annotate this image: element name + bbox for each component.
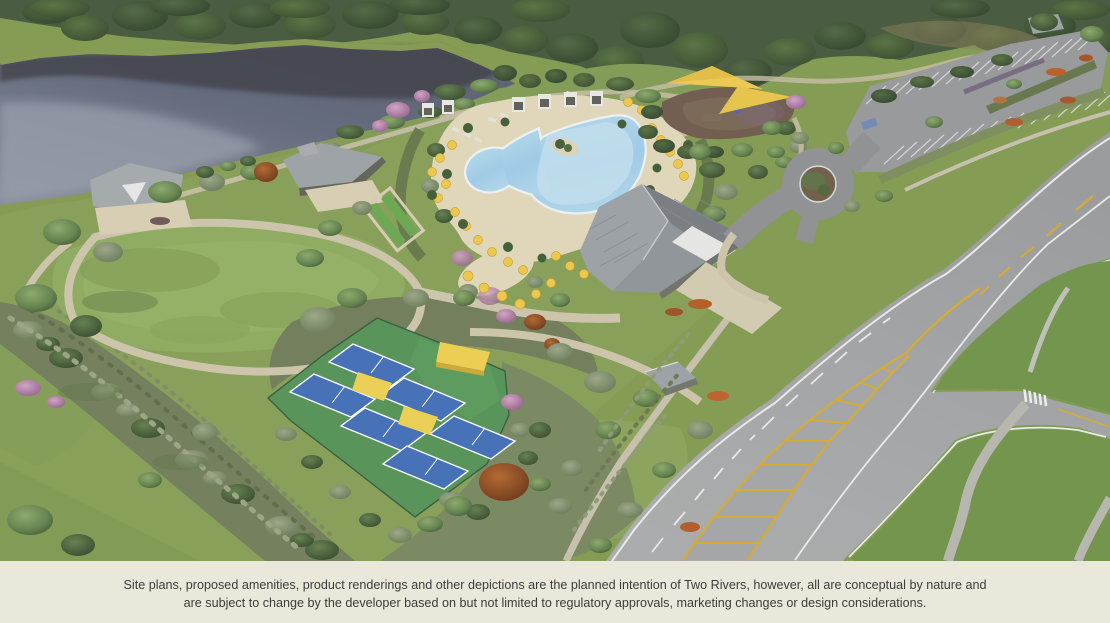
svg-text:are subject to change by the d: are subject to change by the developer b… (184, 596, 927, 610)
svg-text:Site plans, proposed amenities: Site plans, proposed amenities, product … (124, 578, 987, 592)
